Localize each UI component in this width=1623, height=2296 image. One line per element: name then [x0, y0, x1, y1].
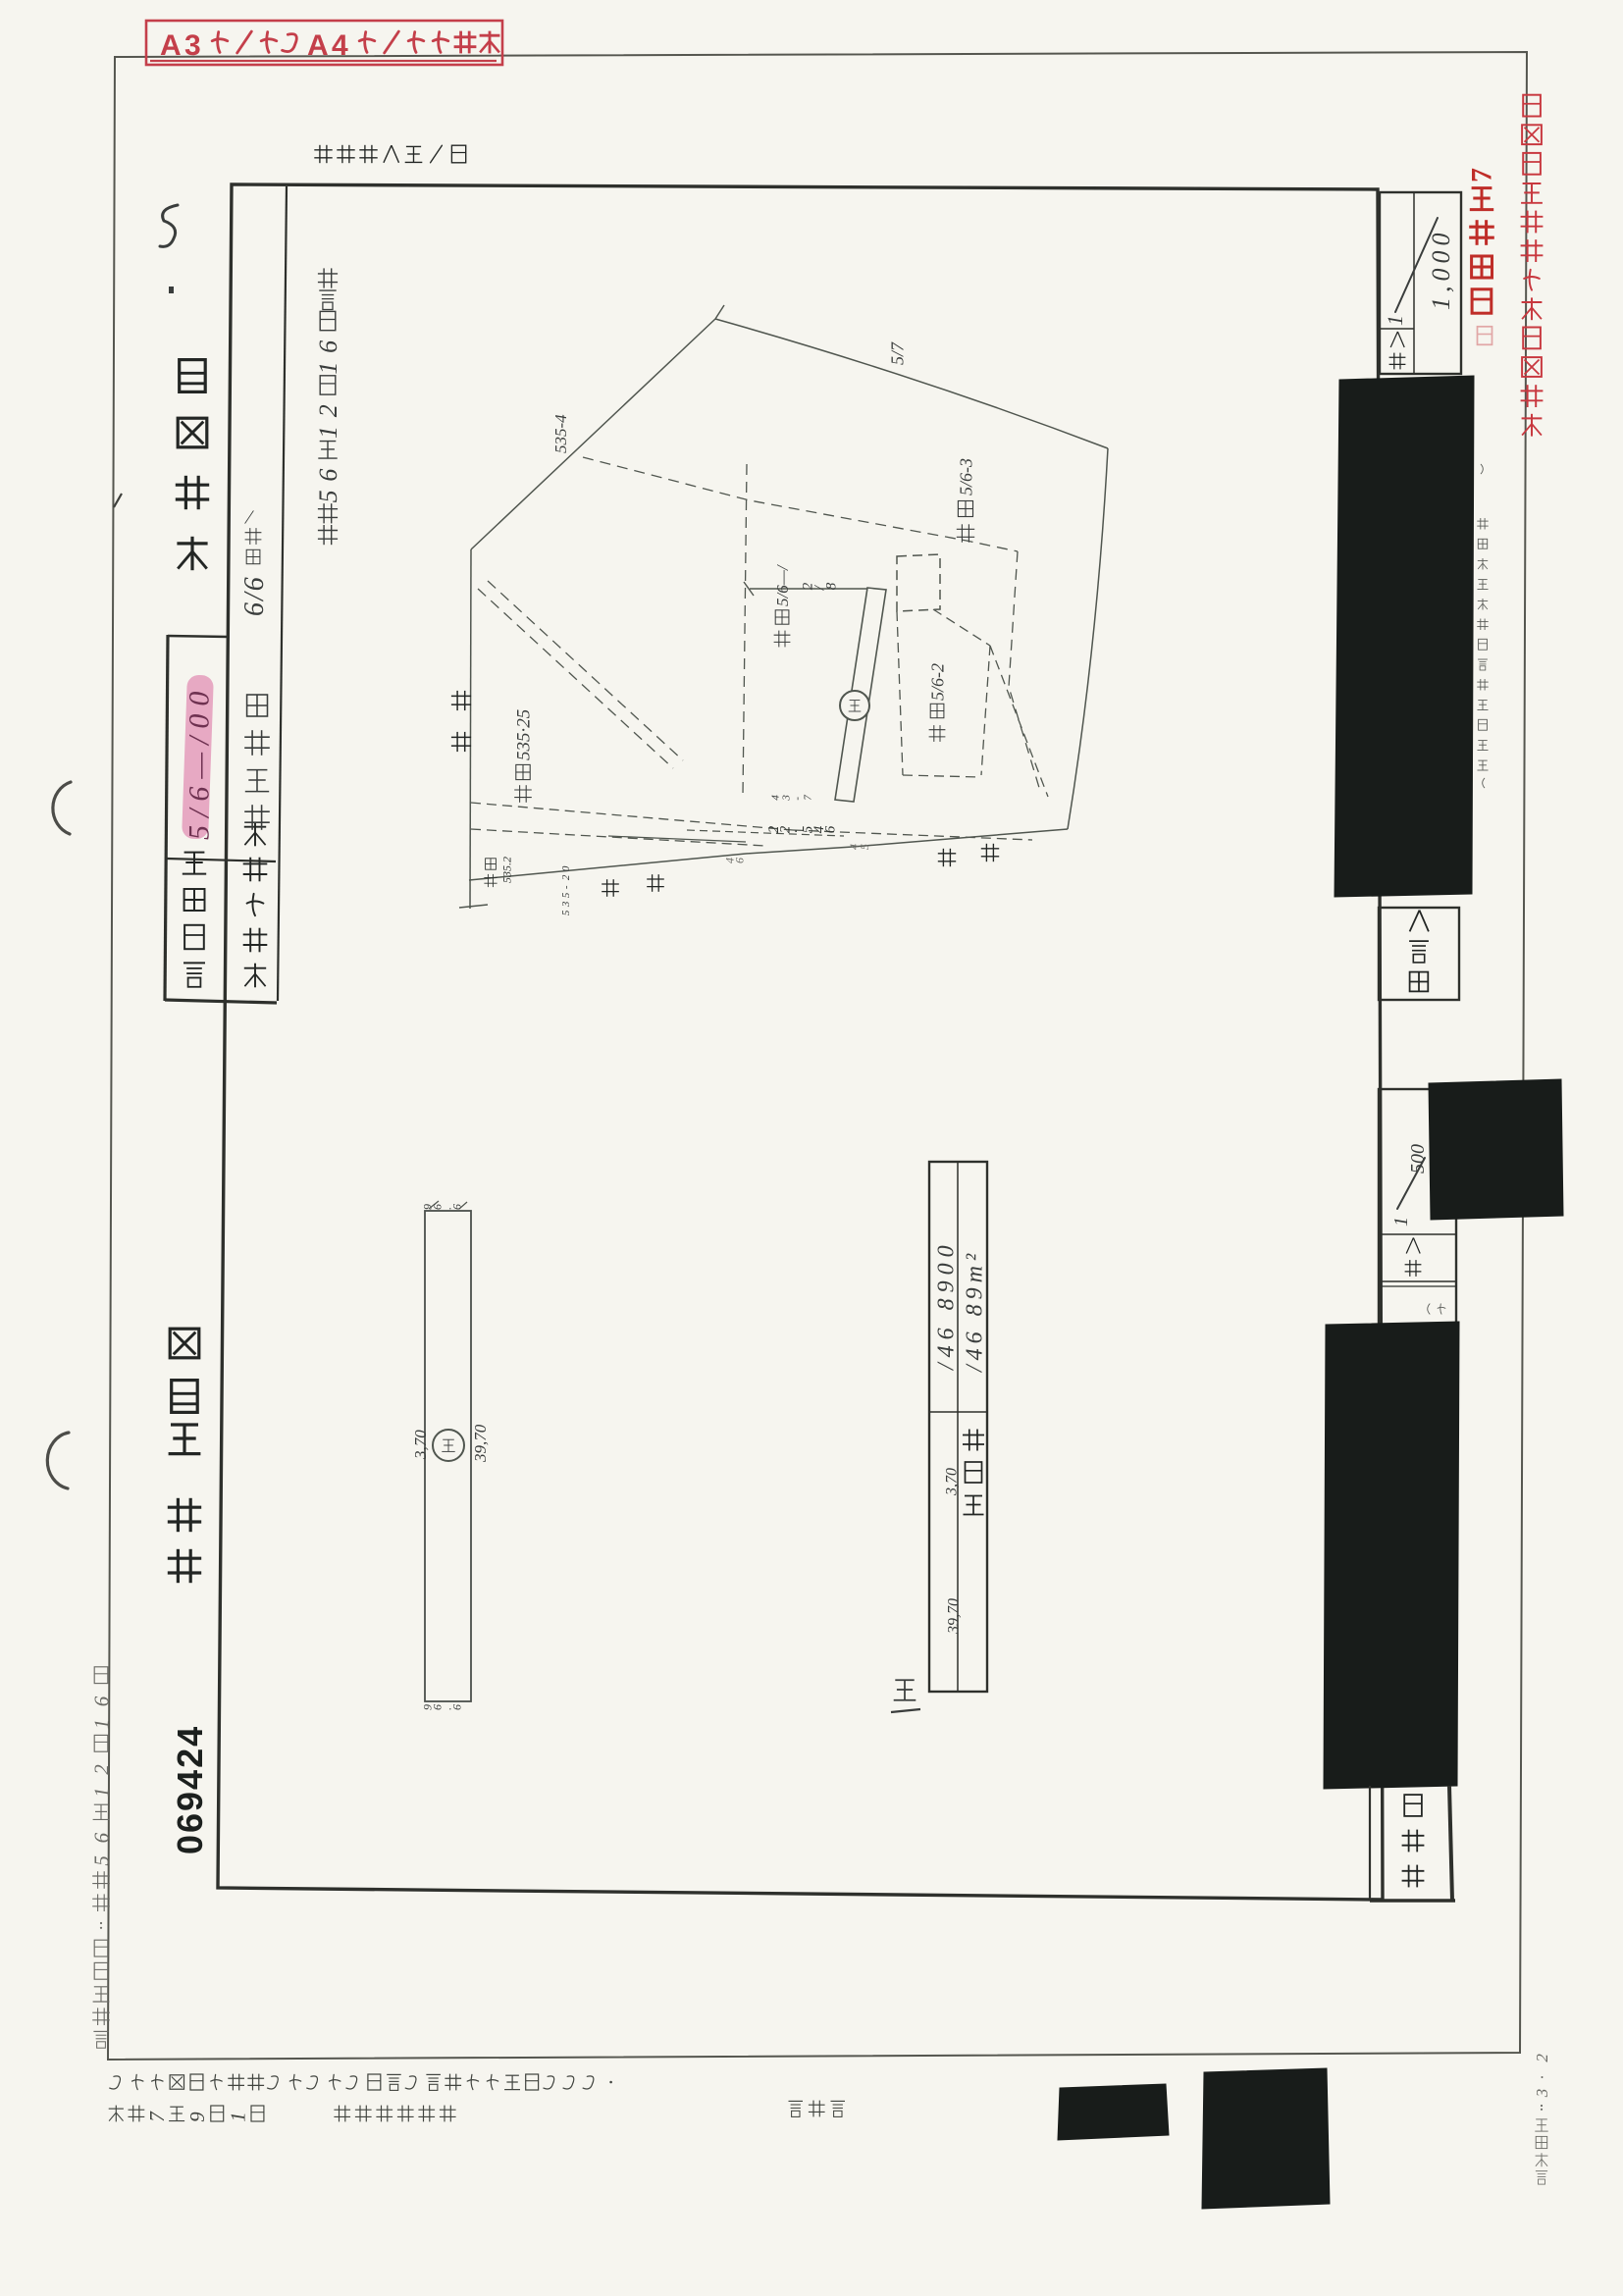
svg-text:3: 3	[560, 901, 572, 908]
svg-text:6: 6	[732, 858, 746, 863]
svg-text:1: 1	[314, 426, 342, 439]
svg-text:6/6: 6/6	[239, 575, 270, 616]
svg-text:5/7: 5/7	[887, 341, 907, 365]
svg-text:3,70: 3,70	[411, 1430, 430, 1460]
svg-text:1: 1	[90, 1719, 114, 1730]
svg-text:A: A	[307, 29, 329, 62]
svg-text:5: 5	[314, 490, 342, 502]
svg-text:3: 3	[184, 29, 201, 62]
svg-text:6: 6	[823, 825, 839, 833]
svg-text:5: 5	[858, 844, 871, 850]
svg-text:500: 500	[1407, 1144, 1429, 1174]
svg-text:A: A	[160, 29, 182, 62]
svg-text:9: 9	[185, 2112, 209, 2122]
svg-text:-: -	[560, 885, 572, 889]
svg-text:5: 5	[90, 1855, 114, 1866]
svg-text:6: 6	[90, 1696, 114, 1706]
svg-text:7: 7	[1466, 168, 1498, 183]
svg-text:6: 6	[314, 469, 342, 482]
svg-text:39,70: 39,70	[471, 1424, 490, 1463]
svg-text:5: 5	[560, 892, 572, 898]
svg-text:6: 6	[314, 340, 342, 353]
svg-text:/46 89m²: /46 89m²	[963, 1249, 988, 1374]
svg-text:7: 7	[145, 2111, 169, 2122]
svg-text:1: 1	[1390, 1217, 1412, 1226]
svg-text:1: 1	[1383, 315, 1407, 326]
svg-text:3,70: 3,70	[944, 1468, 961, 1496]
svg-text:069424: 069424	[170, 1725, 210, 1854]
svg-text:4: 4	[332, 29, 348, 62]
svg-text:39,70: 39,70	[946, 1598, 963, 1635]
svg-text:535-4: 535-4	[551, 414, 570, 453]
svg-text:535·25: 535·25	[514, 709, 535, 760]
svg-text:535.2: 535.2	[499, 857, 513, 883]
svg-text:2: 2	[1533, 2054, 1551, 2062]
svg-text:5/6—/00: 5/6—/00	[183, 684, 216, 840]
svg-text:5/6—/: 5/6—/	[773, 563, 792, 606]
svg-text:1,000: 1,000	[1427, 229, 1455, 311]
svg-text:2: 2	[314, 404, 342, 417]
svg-text:6: 6	[90, 1832, 114, 1843]
svg-text:6: 6	[449, 1704, 463, 1710]
svg-text:5/6-3: 5/6-3	[956, 458, 975, 496]
svg-text:/46 8900: /46 8900	[934, 1239, 960, 1372]
svg-text:3: 3	[1533, 2089, 1551, 2099]
svg-text:8: 8	[823, 582, 839, 590]
svg-text:2: 2	[90, 1764, 114, 1775]
svg-text:5: 5	[560, 910, 572, 915]
svg-text:1: 1	[226, 2112, 249, 2122]
svg-text:0: 0	[560, 865, 572, 871]
svg-text:5/6-2: 5/6-2	[927, 663, 947, 701]
svg-text:6: 6	[449, 1204, 463, 1210]
svg-text:7: 7	[802, 795, 813, 801]
svg-text:1: 1	[90, 1788, 114, 1799]
svg-text:2: 2	[560, 874, 572, 880]
svg-text:·: ·	[1533, 2075, 1551, 2079]
svg-text:1: 1	[314, 362, 342, 375]
